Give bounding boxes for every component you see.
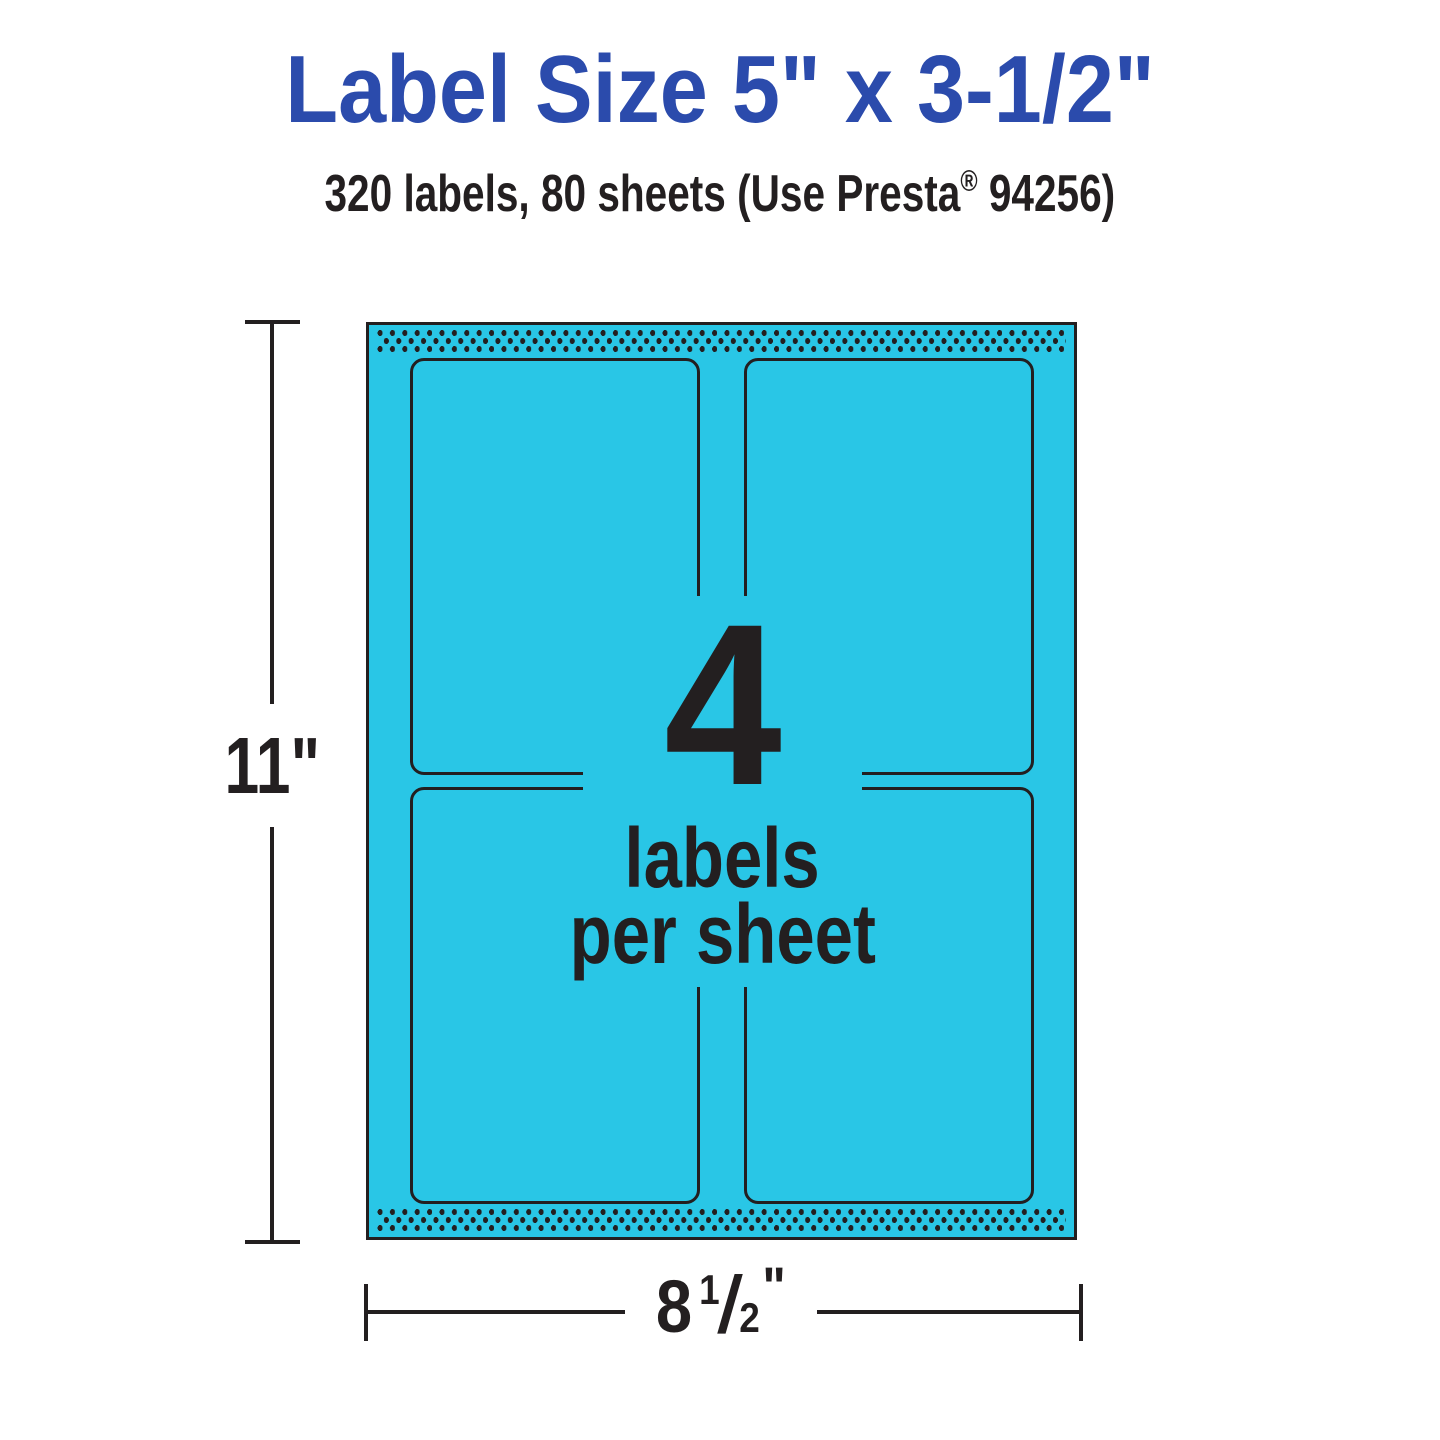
width-inch-mark: " [763,1255,786,1318]
registered-trademark-mark: ® [961,165,978,198]
labels-per-sheet-callout: 4 labels per sheet [583,596,862,987]
perforation-strip-top [377,329,1066,354]
width-whole-number: 8 [656,1265,692,1348]
height-dimension-label: 11" [182,726,362,806]
page-title: Label Size 5" x 3-1/2" [0,40,1440,140]
width-dimension-line-left [366,1310,625,1314]
subtitle-part2: 94256) [978,165,1116,223]
perforation-strip-bottom [377,1208,1066,1233]
page-title-text: Label Size 5" x 3-1/2" [285,40,1155,140]
height-dimension-line-lower [270,827,274,1242]
labels-word: labels [603,826,841,890]
width-fraction-numerator: 1 [699,1266,720,1313]
page-subtitle: 320 labels, 80 sheets (Use Presta® 94256… [0,166,1440,230]
labels-count: 4 [659,617,787,792]
page-subtitle-text: 320 labels, 80 sheets (Use Presta® 94256… [325,166,1116,230]
width-fraction-denominator: 2 [739,1294,760,1341]
per-sheet-word: per sheet [536,902,910,966]
width-dimension-cap-right [1079,1284,1083,1341]
product-diagram: Label Size 5" x 3-1/2" 320 labels, 80 sh… [0,0,1440,1440]
height-dimension-cap-bottom [245,1240,300,1244]
label-sheet: 4 labels per sheet [366,322,1077,1240]
height-dimension-line-upper [270,322,274,704]
width-dimension-line-right [817,1310,1081,1314]
width-dimension-label: 81/2" [617,1270,825,1363]
subtitle-part1: 320 labels, 80 sheets (Use Presta [325,165,961,223]
